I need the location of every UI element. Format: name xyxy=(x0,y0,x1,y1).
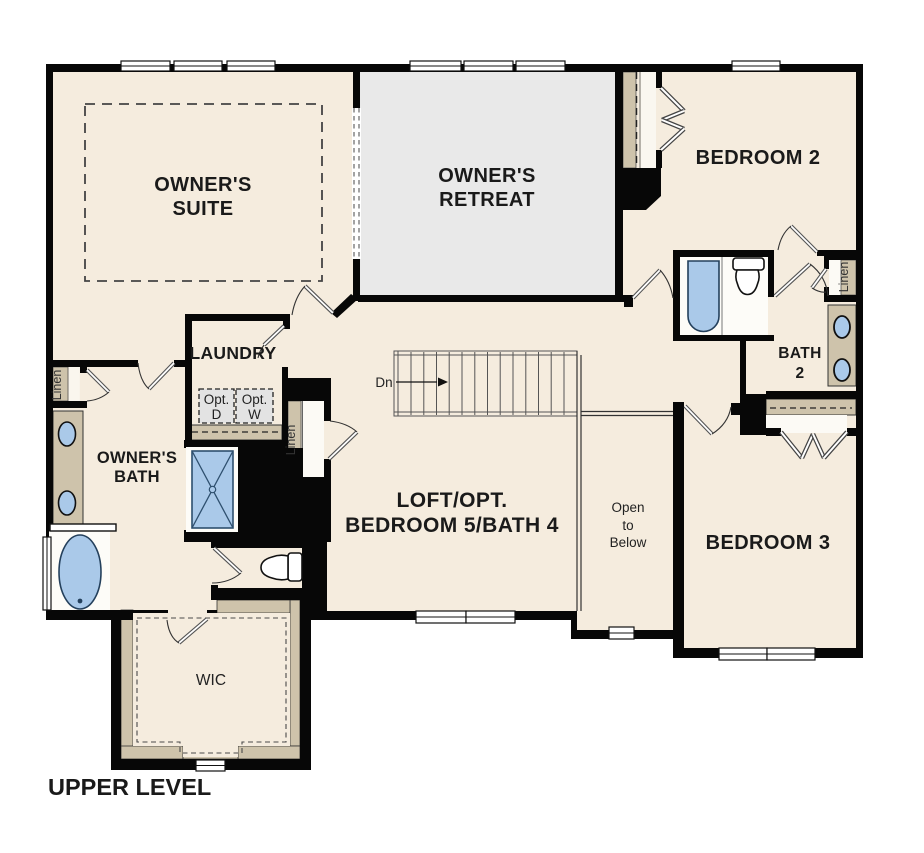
svg-text:Opt.: Opt. xyxy=(204,392,230,407)
svg-text:BEDROOM 5/BATH 4: BEDROOM 5/BATH 4 xyxy=(345,514,559,537)
svg-text:UPPER LEVEL: UPPER LEVEL xyxy=(48,774,211,800)
svg-text:OWNER'S: OWNER'S xyxy=(154,174,252,196)
svg-text:LAUNDRY: LAUNDRY xyxy=(189,343,276,363)
svg-text:D: D xyxy=(212,407,222,422)
svg-text:Linen: Linen xyxy=(837,262,851,293)
svg-text:OWNER'S: OWNER'S xyxy=(438,165,536,187)
svg-text:BEDROOM 3: BEDROOM 3 xyxy=(706,532,831,554)
svg-text:WIC: WIC xyxy=(196,672,226,689)
svg-text:Dn: Dn xyxy=(375,375,392,390)
svg-text:Below: Below xyxy=(610,535,647,550)
svg-text:BATH: BATH xyxy=(114,468,160,486)
svg-text:2: 2 xyxy=(795,365,804,382)
svg-text:OWNER'S: OWNER'S xyxy=(97,449,177,467)
svg-text:Linen: Linen xyxy=(50,370,64,401)
svg-text:Opt.: Opt. xyxy=(242,392,268,407)
svg-text:LOFT/OPT.: LOFT/OPT. xyxy=(397,489,508,512)
svg-text:RETREAT: RETREAT xyxy=(439,189,535,211)
svg-text:SUITE: SUITE xyxy=(173,198,234,220)
svg-text:Linen: Linen xyxy=(284,425,298,456)
svg-text:to: to xyxy=(622,518,633,533)
svg-text:BEDROOM 2: BEDROOM 2 xyxy=(696,147,821,169)
svg-text:BATH: BATH xyxy=(778,345,822,362)
svg-text:Open: Open xyxy=(611,500,644,515)
svg-text:W: W xyxy=(248,407,261,422)
